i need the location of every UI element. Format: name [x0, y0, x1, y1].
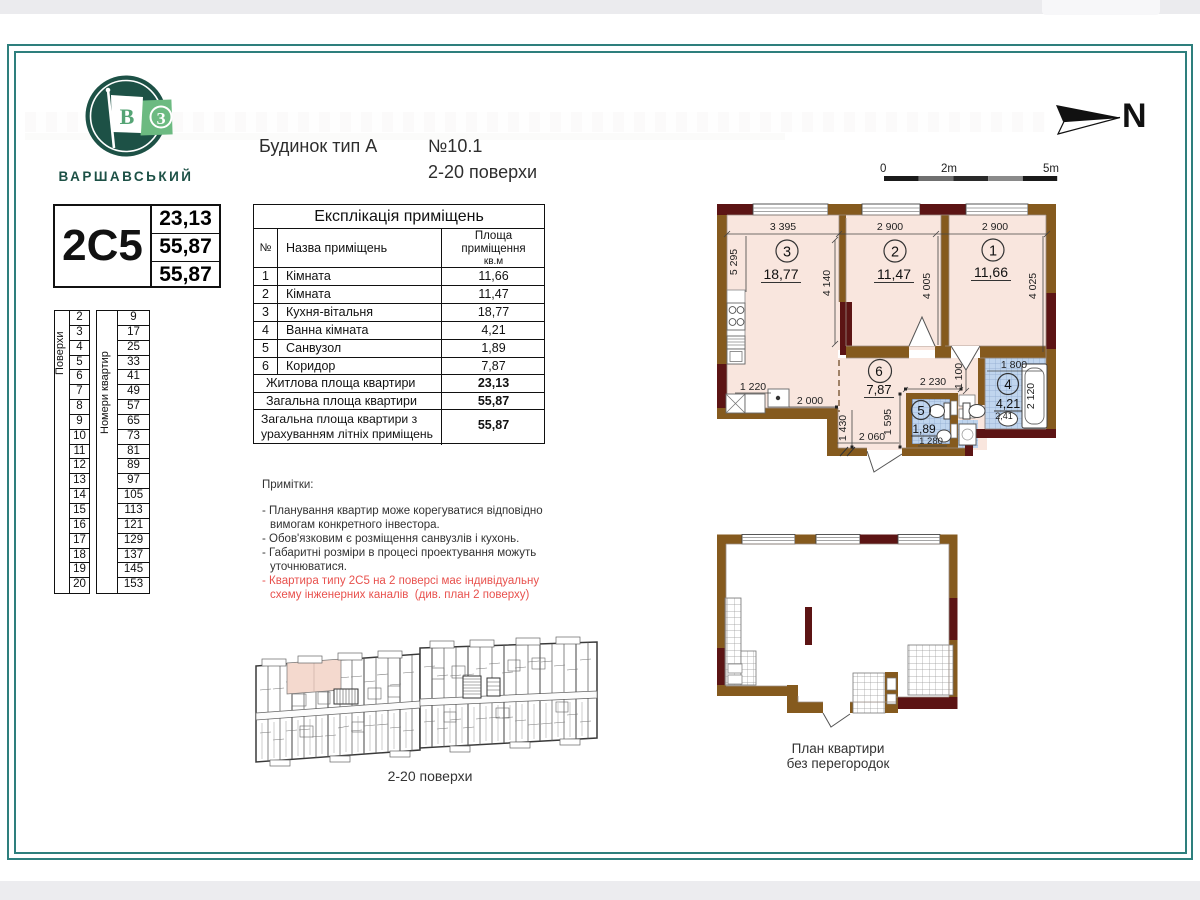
svg-text:2,41: 2,41 — [995, 411, 1013, 421]
svg-text:1 595: 1 595 — [882, 409, 894, 435]
svg-text:2 900: 2 900 — [877, 221, 903, 233]
svg-text:11,47: 11,47 — [877, 266, 911, 282]
svg-text:1 430: 1 430 — [837, 415, 849, 441]
svg-text:5: 5 — [917, 403, 924, 418]
svg-text:1 280: 1 280 — [919, 436, 943, 447]
svg-text:2m: 2m — [941, 163, 957, 175]
svg-text:7,87: 7,87 — [866, 382, 891, 397]
svg-text:4 140: 4 140 — [821, 270, 833, 296]
svg-text:1,89: 1,89 — [912, 422, 936, 436]
svg-text:N: N — [1122, 97, 1147, 135]
svg-text:1 100: 1 100 — [953, 363, 965, 389]
svg-text:2 900: 2 900 — [982, 221, 1008, 233]
svg-text:В: В — [120, 104, 135, 129]
svg-text:6: 6 — [875, 364, 883, 379]
svg-text:3: 3 — [783, 245, 791, 261]
svg-text:2: 2 — [891, 245, 899, 261]
svg-text:4 005: 4 005 — [921, 273, 933, 299]
svg-text:11,66: 11,66 — [974, 264, 1008, 280]
svg-text:4 025: 4 025 — [1027, 273, 1039, 299]
svg-text:ВАРШАВСЬКИЙ: ВАРШАВСЬКИЙ — [59, 169, 194, 184]
svg-text:1: 1 — [989, 244, 997, 260]
svg-text:5 295: 5 295 — [728, 249, 740, 275]
svg-text:2 230: 2 230 — [920, 376, 946, 388]
svg-text:18,77: 18,77 — [763, 266, 798, 282]
svg-text:0: 0 — [880, 163, 886, 175]
svg-text:2 000: 2 000 — [797, 395, 823, 407]
svg-text:1 220: 1 220 — [740, 381, 766, 393]
svg-text:без перегородок: без перегородок — [787, 756, 890, 771]
svg-text:1 800: 1 800 — [1001, 359, 1027, 371]
svg-text:4: 4 — [1004, 377, 1012, 392]
svg-text:З: З — [157, 109, 166, 128]
svg-text:2 120: 2 120 — [1025, 383, 1037, 409]
svg-text:План квартири: План квартири — [792, 741, 885, 756]
svg-text:5m: 5m — [1043, 163, 1059, 175]
svg-text:3 395: 3 395 — [770, 221, 796, 233]
svg-text:4,21: 4,21 — [996, 397, 1020, 411]
